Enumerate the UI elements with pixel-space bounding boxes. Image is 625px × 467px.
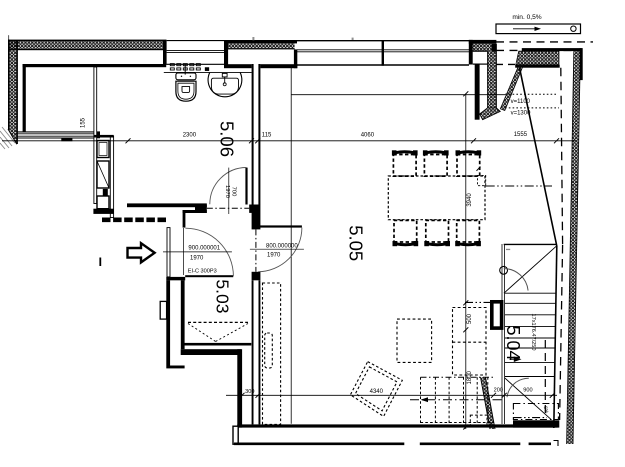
svg-text:min. 0,5%: min. 0,5%: [512, 14, 541, 21]
svg-text:900.000001: 900.000001: [188, 246, 220, 252]
svg-text:200: 200: [494, 388, 503, 394]
svg-text:5.03: 5.03: [213, 279, 233, 313]
svg-text:4060: 4060: [361, 132, 375, 138]
svg-text:5.06: 5.06: [217, 121, 238, 157]
svg-text:v=1100: v=1100: [511, 99, 531, 105]
svg-text:3940: 3940: [467, 193, 473, 207]
svg-text:1800: 1800: [467, 370, 473, 384]
svg-text:v=1300: v=1300: [511, 111, 532, 117]
svg-text:5.04: 5.04: [503, 325, 523, 360]
svg-text:EI-C 300P3: EI-C 300P3: [188, 269, 217, 275]
svg-text:500: 500: [467, 313, 473, 324]
svg-text:700: 700: [231, 187, 237, 197]
svg-text:155: 155: [81, 117, 87, 128]
svg-text:1970: 1970: [267, 253, 281, 259]
svg-text:1555: 1555: [514, 132, 528, 138]
svg-text:5.05: 5.05: [346, 225, 367, 261]
svg-text:17x176.47/250: 17x176.47/250: [530, 313, 536, 350]
svg-text:115: 115: [262, 133, 272, 139]
svg-text:800.000000: 800.000000: [266, 244, 298, 250]
svg-text:1970: 1970: [224, 185, 230, 198]
svg-text:2300: 2300: [183, 132, 197, 138]
svg-text:300: 300: [245, 389, 254, 395]
svg-text:4340: 4340: [370, 389, 384, 395]
svg-text:900: 900: [523, 388, 532, 394]
svg-text:1970: 1970: [190, 256, 204, 262]
